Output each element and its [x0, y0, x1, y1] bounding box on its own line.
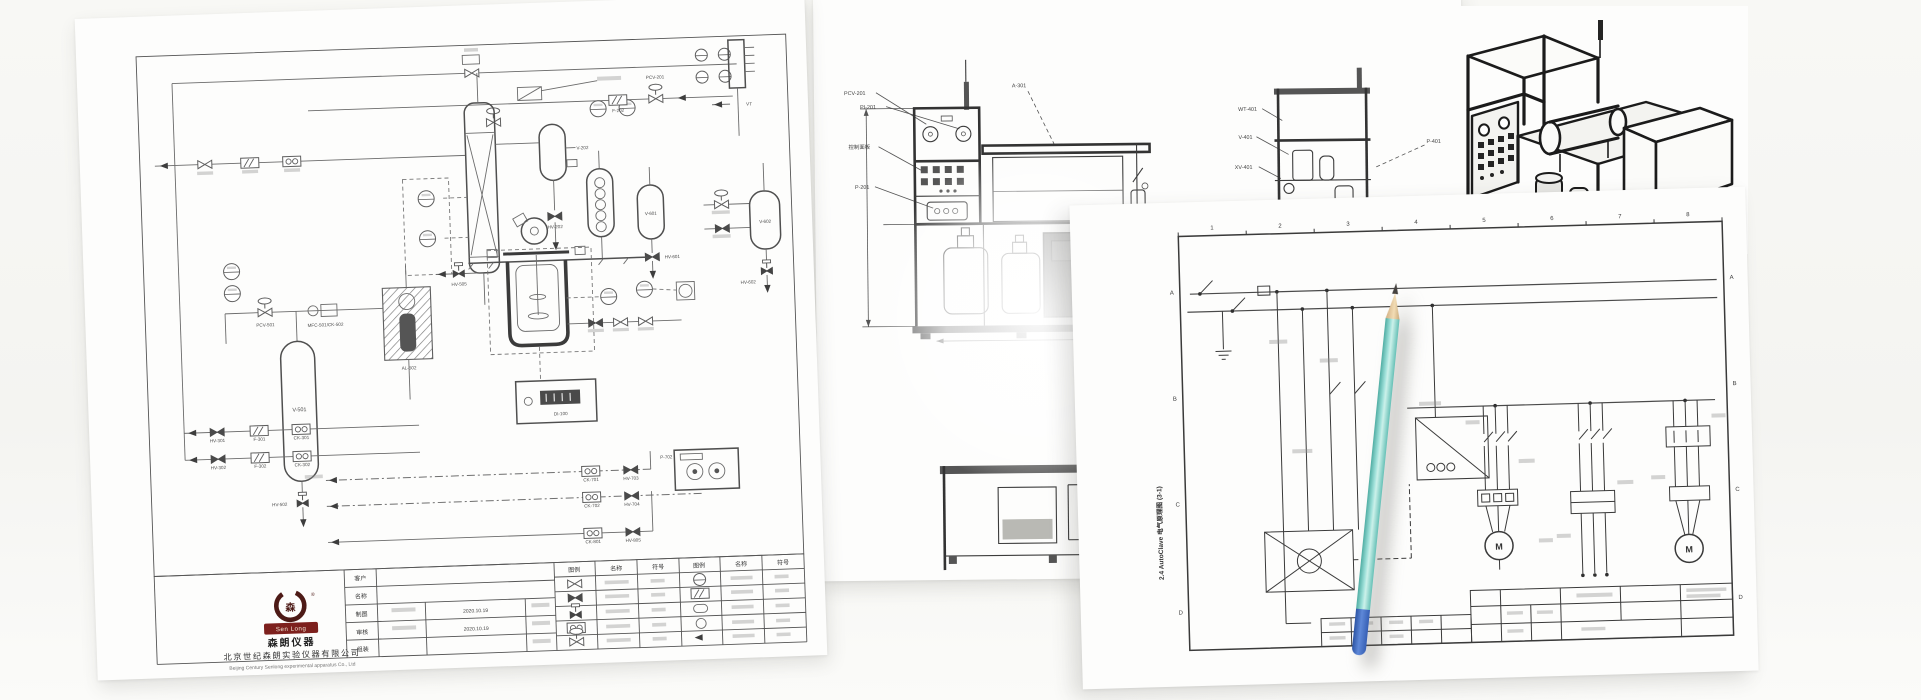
vessel-v601: V-601 HV-601 [636, 166, 681, 279]
legend-h1: 名称 [610, 564, 622, 572]
tb-row-drawn: 制图 [355, 610, 367, 618]
pencil-lead-tip [1392, 283, 1399, 295]
pcv501-mfc-group: PCV-501 MFC-501/CK-502 [223, 258, 384, 343]
tag-hv502: HV-502 [272, 502, 288, 508]
motor-branch-1: M [1465, 405, 1538, 571]
tag-hv703: HV-703 [623, 476, 639, 482]
tag-hv601: HV-601 [665, 254, 681, 260]
pid-top-lines: F-202 PCV-201 [171, 39, 750, 460]
electrical-caption: 2.4 AutoClave 电气原理图 (3-1) [1154, 486, 1166, 580]
heat-exchanger [586, 150, 616, 259]
tb-row-assembled: 组装 [357, 645, 369, 653]
elec-grid-refs: 1 2 3 4 5 6 7 8 A B C D A B C D [1168, 211, 1744, 617]
label-pi201: PI-201 [860, 105, 876, 111]
legend-h0: 图例 [568, 566, 580, 574]
tag-f302: F-302 [254, 464, 267, 469]
bottom-long-lines: CK-701 HV-703 CK-702 HV-704 P-702 CK-801… [304, 448, 741, 554]
label-xv401: XV-401 [1235, 165, 1253, 171]
tag-hv505: HV-505 [451, 281, 467, 287]
tb-draw-date: 2020.10.19 [463, 608, 488, 615]
col-3: 3 [1346, 222, 1350, 228]
transformer-unit [1412, 304, 1489, 480]
tag-v602: V-602 [759, 219, 772, 224]
motor-feeder [1407, 398, 1715, 410]
col-1: 1 [1210, 225, 1214, 231]
condenser-and-v602: VT V-602 HV-602 [698, 39, 783, 295]
tag-vt: VT [746, 101, 752, 106]
col-2: 2 [1278, 224, 1282, 230]
row-b-r: B [1733, 381, 1737, 387]
tag-hv301: HV-301 [210, 438, 226, 444]
tag-ck301: CK-301 [294, 435, 310, 441]
pid-drawing: F-202 PCV-201 [75, 0, 828, 681]
col-5: 5 [1482, 218, 1486, 224]
control-panel-3d [1472, 102, 1518, 198]
tb-row-name: 名称 [355, 592, 367, 600]
label-v401: V-401 [1238, 135, 1252, 141]
label-wt401: WT-401 [1238, 107, 1257, 113]
tag-v501: V-501 [292, 407, 306, 413]
autoclave-reactor [467, 207, 698, 383]
tag-pcv201: PCV-201 [646, 74, 665, 80]
col-4: 4 [1414, 220, 1418, 226]
al502-unit: AL-502 [381, 265, 434, 401]
pid-sheet: F-202 PCV-201 [75, 0, 828, 681]
tag-f301: F-301 [253, 437, 266, 442]
legend-h5: 符号 [777, 558, 789, 566]
logo-reg-mark: ® [311, 591, 315, 598]
row-d-r: D [1738, 595, 1743, 601]
motor-branch-3: M [1649, 399, 1729, 563]
row-c: C [1176, 503, 1181, 509]
col-8: 8 [1686, 212, 1690, 218]
row-a: A [1170, 291, 1174, 297]
di100-display: DI-100 [516, 379, 597, 424]
tag-ck702: CK-702 [584, 503, 600, 509]
legend-h2: 符号 [652, 563, 664, 571]
tag-hv704: HV-704 [624, 502, 640, 508]
tag-ck801: CK-801 [585, 539, 601, 545]
tb-check-date: 2020.10.19 [464, 626, 489, 633]
motor-1-label: M [1495, 542, 1503, 552]
electrical-sheet: 1 2 3 4 5 6 7 8 A B C D A B C D 2.4 Auto… [1069, 187, 1758, 690]
motor-2-label: M [1685, 544, 1693, 554]
tag-hv302: HV-302 [211, 465, 227, 471]
tag-f202: F-202 [612, 108, 625, 113]
tag-pcv501: PCV-501 [256, 322, 275, 328]
col-6: 6 [1550, 216, 1554, 222]
legend-h4: 名称 [735, 560, 747, 568]
power-buses [1187, 266, 1719, 360]
row-b: B [1173, 397, 1177, 403]
col-7: 7 [1618, 214, 1622, 220]
tb-row-customer: 客户 [354, 574, 366, 582]
tag-v202: V-202 [576, 145, 589, 150]
electrical-schematic: 1 2 3 4 5 6 7 8 A B C D A B C D 2.4 Auto… [1069, 187, 1758, 690]
row-d: D [1179, 611, 1184, 617]
photo-of-engineering-drawings: F-202 PCV-201 [0, 0, 1921, 700]
tag-hv602: HV-602 [741, 279, 757, 285]
left-manifolds: HV-301 F-301 CK-301 HV-302 F-302 CK-302 [184, 420, 420, 471]
tb-row-checked: 审核 [356, 628, 368, 636]
motor-branch-2 [1535, 402, 1636, 578]
logo-glyph: 森 [284, 601, 296, 614]
tag-di100: DI-100 [554, 411, 568, 416]
legend-h3: 图例 [693, 561, 705, 569]
company-en: Beijing Century Senlong experimental app… [229, 662, 356, 672]
elec-border [1178, 221, 1733, 650]
tag-ck302: CK-302 [294, 462, 310, 468]
row-c-r: C [1735, 487, 1740, 493]
pid-feed-line [155, 150, 466, 176]
label-p401: P-401 [1426, 139, 1440, 145]
tag-mfc501: MFC-501/CK-502 [307, 322, 344, 328]
label-p201: P-201 [855, 185, 869, 191]
tag-ck701: CK-701 [583, 477, 599, 483]
pid-titleblock: 森 ® Sen Long 森朗仪器 北京世纪森朗实验仪器有限公司 Beijing… [154, 554, 807, 675]
vessel-v202: V-202 HV-202 [495, 123, 593, 252]
logo-banner-text: Sen Long [276, 625, 307, 633]
label-a301: A-301 [1012, 83, 1026, 89]
tag-hv805: HV-805 [625, 537, 641, 543]
label-panel: 控制面板 [848, 143, 870, 151]
brand-cn: 森朗仪器 [266, 635, 315, 650]
row-a-r: A [1730, 275, 1734, 281]
pid-border [136, 34, 804, 576]
tag-v601: V-601 [645, 211, 658, 216]
label-pcv201: PCV-201 [844, 91, 866, 97]
pencil-wood-cone [1386, 292, 1403, 319]
elec-titleblock [1320, 583, 1733, 646]
tag-p702: P-702 [660, 454, 673, 459]
distillation-column: HV-505 [399, 72, 501, 307]
